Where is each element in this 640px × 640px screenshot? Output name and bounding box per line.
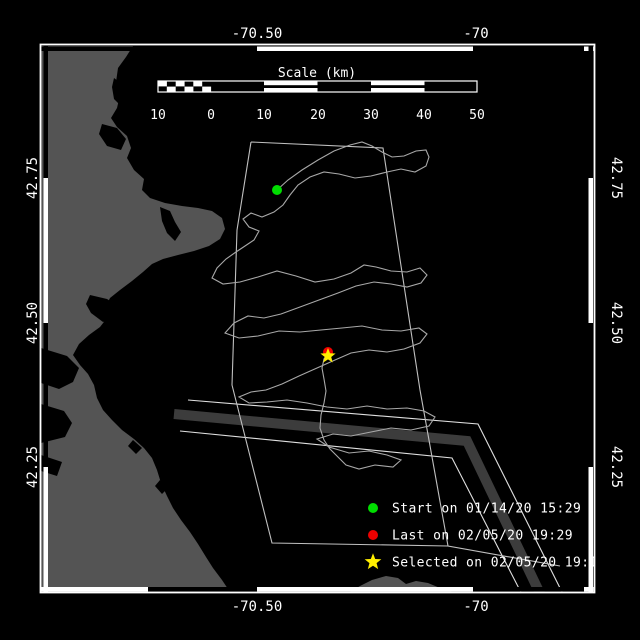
scale-tick-label: 10 [150,108,166,123]
scale-tick-label: 10 [256,108,272,123]
legend-last-icon [368,530,378,540]
left-lat-label-1: 42.75 [25,157,41,199]
scale-tick-label: 0 [207,108,215,123]
scale-tick-label: 40 [416,108,432,123]
legend-last-label: Last on 02/05/20 19:29 [392,529,573,544]
left-lat-label-3: 42.25 [25,446,41,488]
top-lon-label-2: -70 [463,26,488,42]
legend-start-label: Start on 01/14/20 15:29 [392,502,581,517]
map-plot-canvas[interactable]: Scale (km) 10 0 10 20 30 40 50 [0,0,640,640]
scale-bar-title: Scale (km) [278,66,356,81]
scale-tick-label: 30 [363,108,379,123]
top-lon-label-1: -70.50 [232,26,283,42]
legend-selected-label: Selected on 02/05/20 19:14 [392,556,606,571]
start-position-marker[interactable] [272,185,282,195]
bottom-lon-label-1: -70.50 [232,599,283,615]
legend: Start on 01/14/20 15:29 Last on 02/05/20… [365,502,606,571]
scale-tick-label: 50 [469,108,485,123]
left-lat-label-2: 42.50 [25,302,41,344]
map-window: Scale (km) 10 0 10 20 30 40 50 [0,0,640,640]
right-lat-label-2: 42.50 [608,302,624,344]
right-lat-label-1: 42.75 [608,157,624,199]
bottom-lon-label-2: -70 [463,599,488,615]
right-lat-label-3: 42.25 [608,446,624,488]
legend-start-icon [368,503,378,513]
scale-tick-label: 20 [310,108,326,123]
